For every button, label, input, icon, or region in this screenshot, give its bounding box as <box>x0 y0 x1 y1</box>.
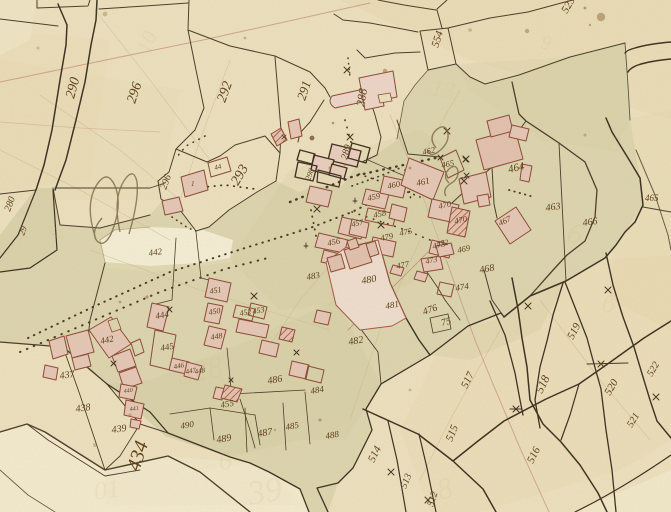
svg-text:439: 439 <box>111 423 127 436</box>
svg-text:466: 466 <box>582 216 598 229</box>
svg-text:440: 440 <box>123 387 133 395</box>
svg-text:437: 437 <box>59 369 76 382</box>
svg-text:442: 442 <box>148 246 163 258</box>
svg-text:441: 441 <box>129 405 139 413</box>
svg-text:465: 465 <box>645 193 659 203</box>
svg-text:463: 463 <box>545 201 561 214</box>
svg-text:1: 1 <box>191 180 195 188</box>
svg-text:438: 438 <box>75 402 91 415</box>
